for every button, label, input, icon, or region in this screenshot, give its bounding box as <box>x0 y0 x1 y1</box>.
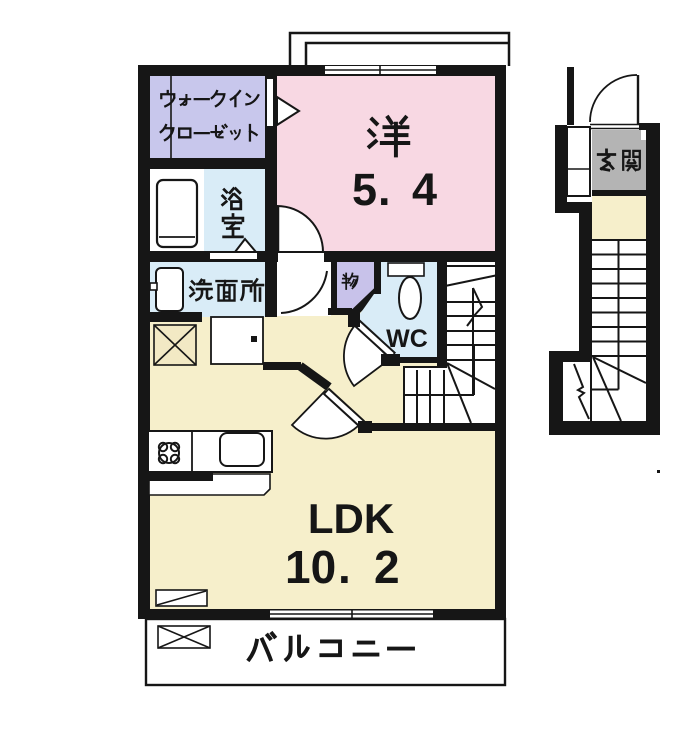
svg-text:5: 5 <box>352 164 377 215</box>
svg-text:2: 2 <box>374 541 400 593</box>
svg-text:WC: WC <box>386 325 428 353</box>
svg-text:.: . <box>378 164 391 215</box>
svg-text:.: . <box>338 541 351 593</box>
svg-text:10: 10 <box>285 541 336 593</box>
svg-text:LDK: LDK <box>308 495 394 542</box>
svg-text:4: 4 <box>412 164 437 215</box>
